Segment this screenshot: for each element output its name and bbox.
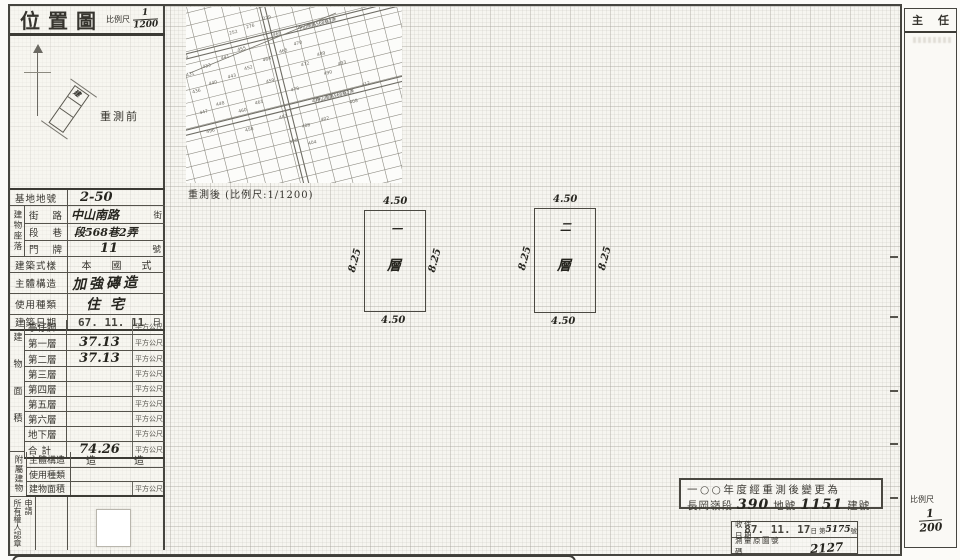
page-title: 位置圖	[20, 5, 104, 34]
site-number-value: 2-50	[68, 190, 113, 205]
floor-char: 層	[557, 255, 571, 275]
area-row: 第三層平方公尺	[24, 367, 165, 382]
area-row: 亭仔脚平方公尺	[24, 320, 165, 335]
left-panel: 位置圖 比例尺 1 1200 建	[10, 6, 165, 550]
seal-section: 所有權人認章 申請	[10, 497, 165, 550]
svg-text:488: 488	[301, 122, 311, 130]
lane-row: 段巷 段568巷2弄	[24, 224, 165, 241]
building-style-value: 本國式	[82, 257, 172, 272]
structure-row: 主體構造 加強磚造	[10, 273, 165, 294]
building-number: 1151	[800, 497, 843, 513]
floor-plan-1: 4.50 4.50 8.25 8.25 一 層	[364, 210, 426, 312]
location-sketch-area: 建 重測前	[10, 36, 165, 188]
seal-placeholder-box	[96, 509, 131, 547]
scale-label: 比例尺	[106, 14, 130, 25]
svg-text:483: 483	[278, 113, 288, 121]
ruler-tick	[890, 256, 898, 258]
location-header: 建物座落	[10, 206, 24, 257]
faint-stamp-mark	[913, 37, 951, 43]
annex-usage-row: 使用種類	[26, 468, 165, 482]
structure-value: 加強磚造	[68, 272, 141, 295]
building-location-rows: 建物座落 街路 中山南路 街	[10, 206, 165, 257]
svg-text:252: 252	[229, 29, 239, 37]
svg-text:465: 465	[279, 47, 289, 55]
crosshair-tick	[24, 72, 51, 73]
svg-text:452: 452	[244, 64, 254, 72]
north-arrow-head-icon	[33, 44, 43, 53]
svg-text:279: 279	[262, 14, 272, 22]
floor-area-table: 建物面積 亭仔脚平方公尺 第一層37.13平方公尺 第二層37.13平方公尺 第…	[10, 320, 165, 452]
svg-text:493: 493	[337, 59, 347, 67]
floor-char: 層	[387, 255, 401, 275]
director-signoff-box: 主 任 比例尺 1 200	[904, 8, 957, 548]
area-row: 第四層平方公尺	[24, 382, 165, 397]
before-resurvey-label: 重測前	[100, 108, 139, 124]
area-row: 第二層37.13平方公尺	[24, 351, 165, 367]
floor-number: 二	[560, 219, 571, 235]
director-title: 主 任	[905, 9, 956, 33]
svg-text:404: 404	[308, 139, 318, 147]
floor-plan-2: 4.50 4.50 8.25 8.25 二 層	[534, 208, 596, 313]
cadastral-inset-map: 4264314334364404474484964434414554524604…	[186, 7, 402, 183]
location-map-header: 位置圖 比例尺 1 1200	[10, 6, 165, 36]
land-number: 390	[737, 497, 769, 513]
street-row: 街路 中山南路 街	[24, 206, 165, 224]
door-number-row: 門牌 11 號	[24, 241, 165, 257]
building-style-row: 建築式樣 本國式	[10, 257, 165, 273]
svg-text:408: 408	[349, 98, 359, 106]
annex-area-row: 建物面積平方公尺	[26, 482, 165, 497]
survey-document-page: 位置圖 比例尺 1 1200 建	[0, 0, 960, 560]
lane-value: 段568巷2弄	[68, 224, 138, 240]
after-resurvey-caption: 重測後 (比例尺:1/1200)	[188, 186, 314, 201]
scale-fraction: 1 1200	[132, 8, 158, 30]
ruler-tick	[890, 316, 898, 318]
annex-table: 附屬建物 主體構造造 造 使用種類 建物面積平方公尺	[10, 452, 165, 497]
svg-text:426: 426	[186, 54, 189, 62]
svg-text:440: 440	[208, 79, 218, 87]
ruler-tick	[890, 497, 898, 499]
door-number-value: 11	[72, 241, 118, 256]
main-sheet-frame: 位置圖 比例尺 1 1200 建	[8, 4, 902, 556]
svg-text:459: 459	[265, 77, 275, 85]
svg-text:460: 460	[238, 107, 248, 115]
next-sheet-edge	[12, 555, 576, 560]
floor-number: 一	[391, 221, 402, 237]
svg-text:461: 461	[254, 99, 264, 107]
svg-text:478: 478	[290, 86, 300, 94]
svg-text:489: 489	[316, 50, 326, 58]
area-row: 地下層平方公尺	[24, 427, 165, 442]
usage-row: 使用種類 住宅	[10, 294, 165, 315]
floor-area-header: 建物面積	[10, 320, 24, 452]
ruler-tick	[890, 390, 898, 392]
resurvey-change-stamp: 一○○年度經重測後變更為 長岡嶺段 390 地號 1151 建號	[679, 478, 883, 509]
seal-header: 所有權人認章 申請	[10, 497, 36, 550]
street-value: 中山南路	[71, 206, 119, 223]
north-arrow-line	[37, 50, 38, 116]
usage-value: 住宅	[68, 294, 134, 314]
annex-header: 附屬建物	[10, 452, 26, 497]
svg-text:496: 496	[206, 127, 216, 135]
site-number-label: 基地地號	[10, 191, 67, 205]
area-row: 第五層平方公尺	[24, 397, 165, 412]
map-street-label: 中山南路568巷2弄	[297, 16, 337, 32]
area-row: 第六層平方公尺	[24, 412, 165, 427]
receipt-number: 5175	[825, 525, 850, 535]
building-info-table: 基地地號 2-50 建物座落 街路 中山南路 街	[10, 188, 165, 320]
survey-map-number-value: 2127	[810, 540, 844, 556]
svg-text:412: 412	[361, 80, 371, 88]
parcel-sketch: 建	[48, 85, 89, 133]
svg-text:398: 398	[289, 138, 299, 146]
ruler-tick	[890, 443, 898, 445]
svg-text:447: 447	[199, 108, 209, 116]
svg-text:490: 490	[323, 69, 333, 77]
annex-structure-row: 主體構造造 造	[26, 452, 165, 468]
svg-text:443: 443	[227, 72, 237, 80]
site-number-row: 基地地號 2-50	[10, 190, 165, 206]
area-row: 第一層37.13平方公尺	[24, 335, 165, 351]
director-scale: 比例尺 1 200	[905, 494, 956, 535]
svg-text:402: 402	[320, 115, 330, 123]
